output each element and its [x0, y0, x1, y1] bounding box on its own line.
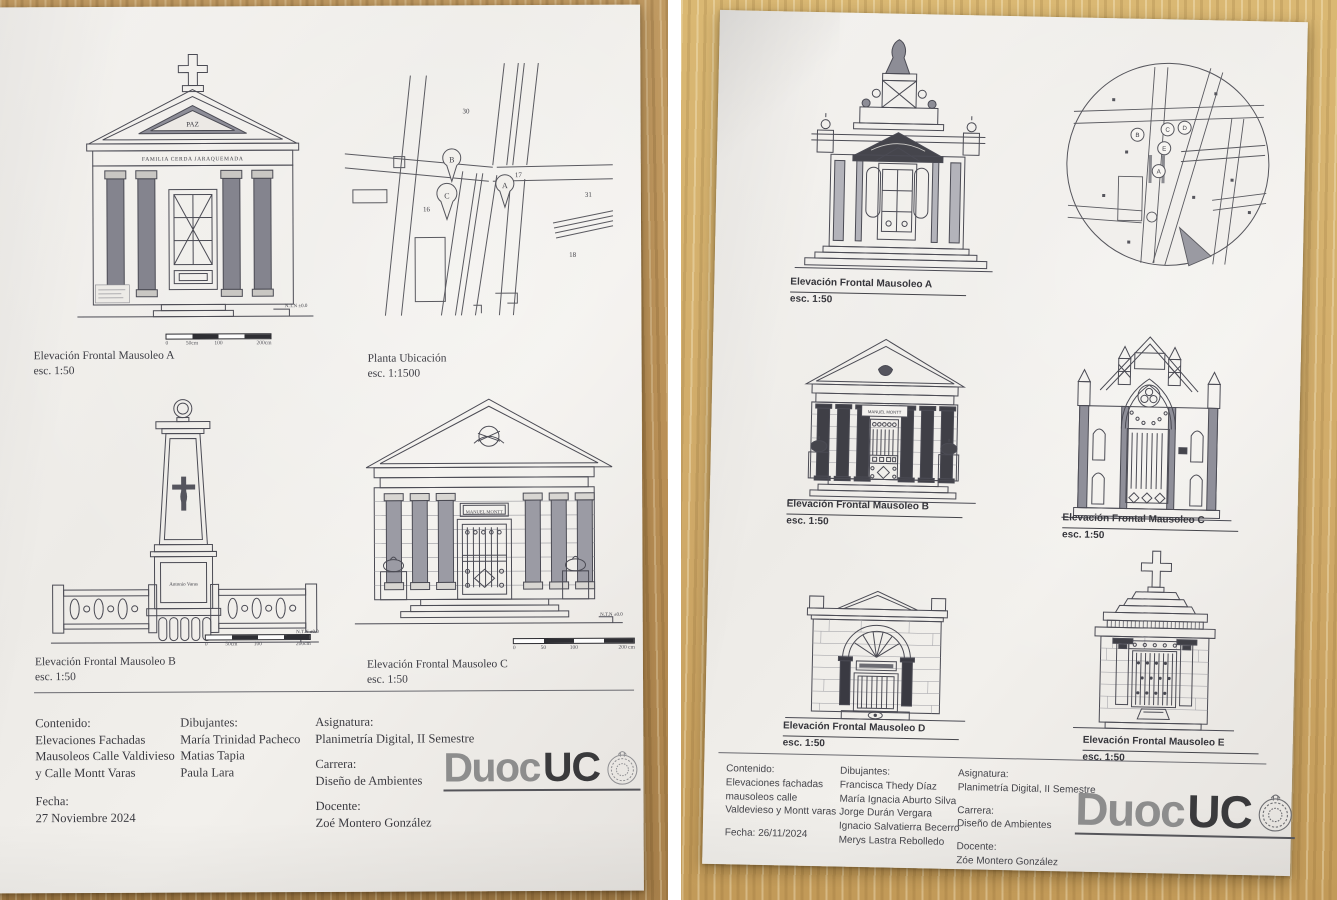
uc-crest-icon	[604, 748, 640, 786]
title-block-dibujantes: Dibujantes: Francisca Thedy Díaz María I…	[838, 765, 960, 850]
svg-text:16: 16	[423, 205, 431, 213]
crucifix-relief	[172, 477, 195, 511]
mausoleo-a-elevation-drawing: PAZ FAMILIA CERDA JARAQUEMADA N.T.N ±0.0	[74, 44, 315, 355]
scale-bar-a: 0 50cm 100 200cm	[165, 333, 271, 347]
svg-text:17: 17	[515, 171, 523, 179]
door-plaque: MANUEL MONTT	[868, 409, 902, 415]
map-pin-c: C	[437, 183, 457, 219]
drawing-b-label: Elevación Frontal Mausoleo B esc. 1:50	[786, 497, 963, 532]
title-block-contenido: Contenido: Elevaciones fachadas mausoleo…	[725, 762, 838, 842]
svg-text:B: B	[1135, 132, 1139, 139]
drawing-c-label: Elevación Frontal Mausoleo C esc. 1:50	[1062, 511, 1239, 546]
mausoleo-d-elevation-drawing	[783, 583, 971, 727]
photo-right: Elevación Frontal Mausoleo A esc. 1:50	[681, 0, 1337, 900]
door-plaque: MANUEL MONTT	[466, 509, 503, 514]
mausoleo-a-elevation-drawing	[794, 32, 999, 282]
scale-bar-b: 0 50cm 100 200cm	[205, 634, 311, 648]
pediment-inscription: PAZ	[186, 121, 199, 129]
map-pin-e: E	[1158, 142, 1171, 155]
svg-text:C: C	[444, 191, 449, 200]
drawing-d-label: Elevación Frontal Mausoleo D esc. 1:50	[783, 719, 960, 754]
site-plan-circular-drawing: B C D E A	[1061, 57, 1275, 271]
duocuc-logo: DuocUC	[1075, 786, 1296, 840]
mausoleo-c-elevation-drawing: MANUEL MONTT N.T.N ±0.0	[354, 389, 625, 632]
map-pin-b: B	[443, 149, 461, 182]
map-pin-b: B	[1131, 128, 1144, 141]
drawing-b-label: Elevación Frontal Mausoleo B esc. 1:50	[35, 655, 176, 685]
drawing-a-label: Elevación Frontal Mausoleo A esc. 1:50	[790, 275, 967, 310]
duocuc-logo: DuocUC	[443, 747, 640, 792]
svg-text:D: D	[1182, 125, 1187, 132]
title-block-contenido: Contenido: Elevaciones Fachadas Mausoleo…	[35, 715, 175, 827]
photo-divider	[668, 0, 681, 900]
uc-crest-icon	[1255, 791, 1296, 834]
drawing-c-label: Elevación Frontal Mausoleo C esc. 1:50	[367, 657, 508, 687]
mausoleo-c-elevation-drawing	[1059, 327, 1238, 526]
mausoleo-b-elevation-drawing: MANUEL MONTT	[788, 328, 982, 508]
svg-text:C: C	[1165, 127, 1170, 134]
level-note: N.T.N ±0.0	[285, 304, 308, 309]
map-pin-d: D	[1178, 121, 1191, 134]
drawing-a-label: Elevación Frontal Mausoleo A esc. 1:50	[34, 349, 175, 379]
photo-left: PAZ FAMILIA CERDA JARAQUEMADA N.T.N ±0.0…	[0, 0, 668, 900]
site-plan-drawing: 30 17 31 16 18 B C A	[344, 61, 615, 320]
sheet-right: Elevación Frontal Mausoleo A esc. 1:50	[702, 10, 1308, 876]
title-block-dibujantes: Dibujantes: María Trinidad Pacheco Matia…	[180, 714, 300, 781]
desk-scene: PAZ FAMILIA CERDA JARAQUEMADA N.T.N ±0.0…	[0, 0, 1337, 900]
map-pin-a: A	[1152, 165, 1165, 178]
scale-bar-c: 0 50 100 200 cm	[513, 638, 635, 653]
svg-text:A: A	[502, 181, 508, 190]
map-pin-c: C	[1161, 123, 1174, 136]
svg-text:E: E	[1162, 146, 1166, 153]
plinth-inscription: Antonio Varas	[169, 583, 198, 588]
sheet-left: PAZ FAMILIA CERDA JARAQUEMADA N.T.N ±0.0…	[0, 5, 644, 894]
mausoleo-b-elevation-drawing: Antonio Varas N.T.N ±0.0	[50, 392, 321, 649]
level-note: N.T.N ±0.0	[600, 613, 623, 618]
svg-text:18: 18	[569, 251, 577, 259]
mausoleo-e-elevation-drawing	[1071, 543, 1240, 736]
map-pin-a: A	[496, 175, 514, 208]
svg-text:30: 30	[463, 107, 471, 115]
svg-text:B: B	[449, 155, 454, 164]
frieze-inscription: FAMILIA CERDA JARAQUEMADA	[142, 156, 244, 162]
svg-text:31: 31	[585, 191, 593, 199]
title-block-divider	[34, 690, 634, 694]
site-plan-label: Planta Ubicación esc. 1:1500	[368, 351, 447, 381]
